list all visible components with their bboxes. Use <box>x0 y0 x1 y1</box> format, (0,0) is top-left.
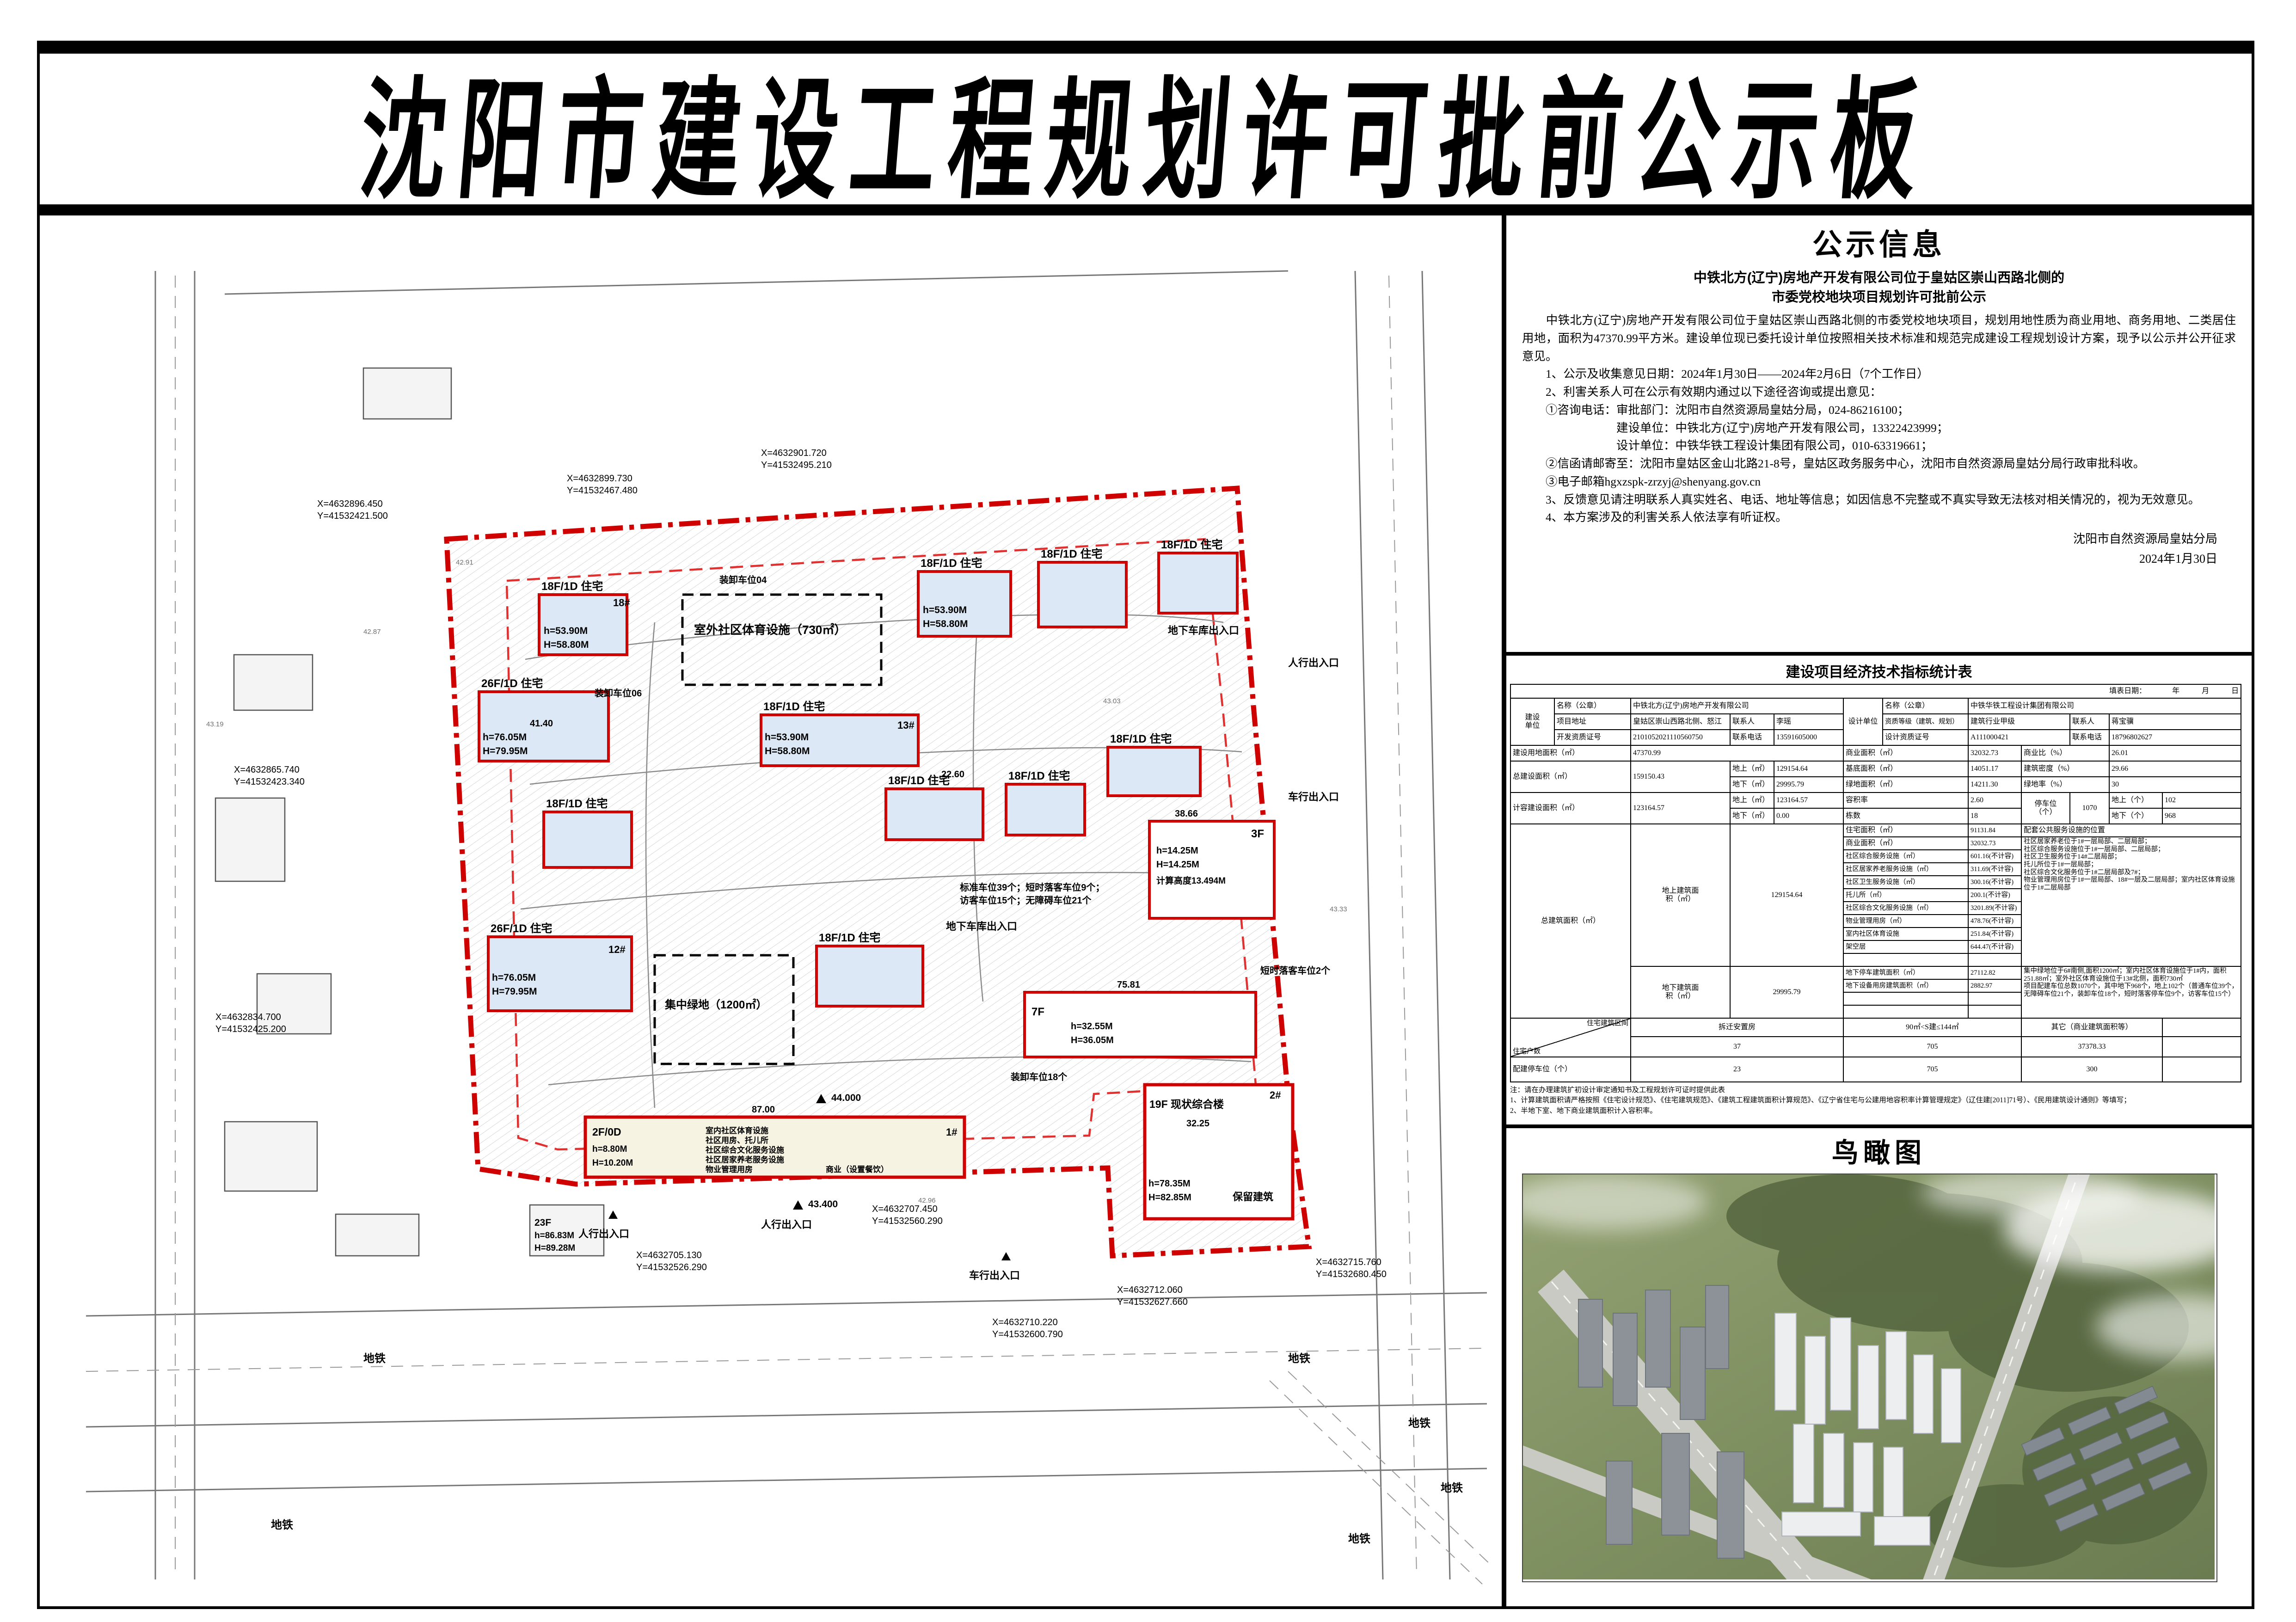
service-line: 商业（设置餐饮） <box>826 1165 889 1174</box>
item-label: 社区居家养老服务设施（㎡） <box>1843 863 1968 876</box>
table-notes: 注：请在办理建筑扩初设计审定通知书及工程规划许可证时提供此表 1、计算建筑面积请… <box>1510 1085 2248 1116</box>
building-h: h=53.90M <box>544 626 588 636</box>
frc-label: 计容建设面积（㎡） <box>1510 793 1631 824</box>
parking-note-1: 标准车位39个；短时落客车位9个； <box>960 882 1105 893</box>
building-H: H=14.25M <box>1156 860 1199 870</box>
blank-cell <box>2162 1037 2241 1057</box>
frc-value: 123164.57 <box>1631 793 1730 824</box>
building-no: 18# <box>613 597 630 608</box>
building-label: 2F/0D <box>592 1126 621 1138</box>
item-label: 托儿所（㎡） <box>1843 889 1968 902</box>
dim-label: 87.00 <box>752 1105 775 1115</box>
spot-elevation: 43.19 <box>206 720 224 728</box>
building-h: h=53.90M <box>765 732 809 743</box>
builder-cert-label: 开发资质证号 <box>1554 730 1631 745</box>
coord-x: X=4632705.130 <box>636 1250 702 1260</box>
item-value: 3201.89(不计容) <box>1968 902 2021 915</box>
size-range: 90㎡<S建≤144㎡ <box>1843 1018 2021 1037</box>
footprint: 14051.17 <box>1968 761 2021 777</box>
notice-subtitle-2: 市委党校地块项目规划许可批前公示 <box>1522 288 2236 307</box>
coord-x: X=4632707.450 <box>872 1204 938 1214</box>
building-label: 19F 现状综合楼 <box>1149 1098 1224 1110</box>
designer-cert-label: 设计资质证号 <box>1883 730 1968 745</box>
parking-v3: 300 <box>2021 1057 2162 1082</box>
coord-y: Y=41532560.290 <box>872 1216 943 1226</box>
metro-label: 地铁 <box>1288 1352 1310 1365</box>
item-value: 251.84(不计容) <box>1968 928 2021 940</box>
building-h: h=14.25M <box>1156 846 1198 856</box>
parking-above: 102 <box>2162 793 2241 808</box>
loading-bay-04: 装卸车位04 <box>719 574 767 585</box>
pedestrian-entrance: 人行出入口 <box>1288 657 1339 669</box>
land-area-label: 建设用地面积（㎡） <box>1510 745 1631 761</box>
parking-note-2: 访客车位15个；无障碍车位21个 <box>960 895 1092 906</box>
site-plan-panel: 室外社区体育设施（730㎡） 集中绿地（1200㎡） 18F/1D 住宅 18#… <box>40 215 1506 1606</box>
parking-above-label: 地上（个） <box>2109 793 2162 808</box>
gfa-below: 29995.79 <box>1730 966 1843 1018</box>
coord-y: Y=41532423.340 <box>234 777 305 787</box>
footprint-label: 基底面积（㎡） <box>1843 761 1968 777</box>
notice-date: 2024年1月30日 <box>1522 549 2236 566</box>
item-value: 300.16(不计容) <box>1968 876 2021 889</box>
dropoff-spaces: 短时落客车位2个 <box>1260 965 1331 976</box>
designer-name-label: 名称（公章） <box>1883 698 1968 714</box>
item-label: 社区综合文化服务设施（㎡） <box>1843 902 1968 915</box>
coord-x: X=4632865.740 <box>234 765 300 775</box>
item-value <box>1968 992 2021 1005</box>
metro-label: 地铁 <box>1348 1533 1370 1545</box>
building-label: 7F <box>1031 1006 1044 1018</box>
density-label: 建筑密度（%） <box>2021 761 2109 777</box>
range-count: 705 <box>1843 1037 2021 1057</box>
parking-below-label: 地下（个） <box>2109 808 2162 824</box>
building-label: 3F <box>1251 828 1264 840</box>
below-value: 29995.79 <box>1774 777 1843 793</box>
loading-bay-18: 装卸车位18个 <box>1010 1071 1068 1082</box>
building-label: 18F/1D 住宅 <box>921 557 982 570</box>
biz-ratio-label: 商业比（%） <box>2021 745 2109 761</box>
notice-section: 公示信息 中铁北方(辽宁)房地产开发有限公司位于皇姑区崇山西路北侧的 市委党校地… <box>1506 215 2252 656</box>
building-1-podium: 87.00 2F/0D h=8.80M H=10.20M 1# 室内社区体育设施… <box>585 1105 964 1177</box>
designer-grade-label: 资质等级（建筑、规划） <box>1883 714 1968 730</box>
total-constr: 159150.43 <box>1631 761 1730 793</box>
coord-x: X=4632899.730 <box>567 473 632 484</box>
builder-addr: 皇姑区崇山西路北侧、怒江 <box>1631 714 1730 730</box>
density: 29.66 <box>2109 761 2241 777</box>
builder-label: 建设 单位 <box>1510 698 1554 745</box>
level-44000: 44.000 <box>831 1093 861 1103</box>
designer-phone: 18796802627 <box>2109 730 2241 745</box>
coord-y: Y=41532421.500 <box>317 511 388 521</box>
building-h: h=78.35M <box>1148 1179 1191 1189</box>
notice-paragraph: ①咨询电话：审批部门：沈阳市自然资源局皇姑分局，024-86216100； <box>1522 401 2236 419</box>
designer-grade: 建筑行业甲级 <box>1968 714 2070 730</box>
dim-label: 41.40 <box>530 719 553 729</box>
item-label <box>1843 1005 1968 1018</box>
item-label: 地下设备用房建筑面积（㎡） <box>1843 979 1968 992</box>
building-H: H=79.95M <box>492 986 537 997</box>
notice-board: 沈阳市建设工程规划许可批前公示板 <box>37 41 2254 1609</box>
metro-label: 地铁 <box>1441 1482 1463 1494</box>
table-title: 建设项目经济技术指标统计表 <box>1510 660 2248 681</box>
birdview-section: 鸟瞰图 <box>1506 1128 2252 1606</box>
building-H: H=82.85M <box>1148 1192 1191 1203</box>
building-h: h=76.05M <box>492 972 536 983</box>
fill-date: 填表日期： 年 月 日 <box>1510 684 2241 698</box>
notice-signature: 沈阳市自然资源局皇姑分局 <box>1522 529 2236 547</box>
below-label: 地下（㎡） <box>1730 777 1774 793</box>
land-area: 47370.99 <box>1631 745 1843 761</box>
bldg-count-label: 栋数 <box>1843 808 1968 824</box>
item-value: 32032.73 <box>1968 837 2021 850</box>
service-line: 社区居家养老服务设施 <box>705 1155 784 1164</box>
coord-y: Y=41532526.290 <box>636 1262 707 1272</box>
dim-label: 32.25 <box>1186 1118 1209 1129</box>
notice-body: 中铁北方(辽宁)房地产开发有限公司位于皇姑区崇山西路北侧的市委党校地块项目，规划… <box>1522 312 2236 527</box>
builder-contact: 李瑶 <box>1774 714 1843 730</box>
frc-below-label: 地下（㎡） <box>1730 808 1774 824</box>
gfa-above: 129154.64 <box>1730 824 1843 966</box>
blank-cell <box>2162 1018 2241 1037</box>
building-h: h=8.80M <box>592 1144 627 1154</box>
item-label: 社区综合服务设施（㎡） <box>1843 850 1968 863</box>
builder-phone-label: 联系电话 <box>1730 730 1774 745</box>
builder-phone: 13591605000 <box>1774 730 1843 745</box>
item-label: 住宅面积（㎡） <box>1843 824 1968 837</box>
building-label: 23F <box>534 1217 551 1228</box>
frc-above: 123164.57 <box>1774 793 1843 808</box>
vehicle-entrance: 车行出入口 <box>969 1270 1020 1281</box>
far-label: 容积率 <box>1843 793 1968 808</box>
dim-label: 38.66 <box>1175 809 1198 819</box>
item-label <box>1843 953 1968 966</box>
title-band: 沈阳市建设工程规划许可批前公示板 <box>40 43 2252 215</box>
green-rate: 30 <box>2109 777 2241 793</box>
coord-x: X=4632712.060 <box>1117 1285 1183 1295</box>
notice-paragraph: 3、反馈意见请注明联系人真实姓名、电话、地址等信息；如因信息不完整或不真实导致无… <box>1522 491 2236 509</box>
item-value: 644.47(不计容) <box>1968 940 2021 953</box>
sport-area-label: 室外社区体育设施（730㎡） <box>694 623 846 637</box>
bldg-count: 18 <box>1968 808 2021 824</box>
item-value: 478.76(不计容) <box>1968 915 2021 928</box>
building-label: 18F/1D 住宅 <box>1041 547 1102 560</box>
building-label: 18F/1D 住宅 <box>1161 538 1222 551</box>
other-value: 37378.33 <box>2021 1037 2162 1057</box>
item-label: 物业管理用房（㎡） <box>1843 915 1968 928</box>
gfa-above-label: 地上建筑面 积（㎡） <box>1631 824 1730 966</box>
building-H: H=89.28M <box>534 1243 575 1253</box>
item-label <box>1843 992 1968 1005</box>
item-label: 地下停车建筑面积（㎡） <box>1843 966 1968 979</box>
building-3f: 3F 38.66 h=14.25M H=14.25M 计算高度13.494M <box>1149 809 1274 918</box>
green-parking-text: 集中绿地位于6#南侧,面积1200㎡；室内社区体育设施位于1#内，面积251.8… <box>2021 966 2241 1018</box>
metro-labels: 地铁 地铁 地铁 地铁 地铁 地铁 <box>271 1352 1463 1545</box>
building-h: h=86.83M <box>534 1231 574 1241</box>
right-column: 公示信息 中铁北方(辽宁)房地产开发有限公司位于皇姑区崇山西路北侧的 市委党校地… <box>1506 215 2252 1606</box>
loading-bay-06: 装卸车位06 <box>594 688 642 699</box>
builder-name: 中铁北方(辽宁)房地产开发有限公司 <box>1631 698 1843 714</box>
item-label: 商业面积（㎡） <box>1843 837 1968 850</box>
service-line: 室内社区体育设施 <box>706 1126 768 1135</box>
building-label: 26F/1D 住宅 <box>491 922 552 935</box>
designer-phone-label: 联系电话 <box>2070 730 2109 745</box>
item-label: 架空层 <box>1843 940 1968 953</box>
pedestrian-entrance: 人行出入口 <box>761 1219 812 1230</box>
item-value: 601.16(不计容) <box>1968 850 2021 863</box>
coord-x: X=4632896.450 <box>317 499 383 509</box>
builder-addr-label: 项目地址 <box>1554 714 1631 730</box>
coord-y: Y=41532627.660 <box>1117 1297 1188 1307</box>
building-label: 26F/1D 住宅 <box>481 677 543 690</box>
frc-above-label: 地上（㎡） <box>1730 793 1774 808</box>
green-rate-label: 绿地率（%） <box>2021 777 2109 793</box>
retained-building-label: 保留建筑 <box>1232 1191 1273 1203</box>
parking-v2: 705 <box>1843 1057 2021 1082</box>
building-H: H=36.05M <box>1071 1035 1114 1045</box>
builder-contact-label: 联系人 <box>1730 714 1774 730</box>
spot-elevation: 42.87 <box>363 628 381 636</box>
coord-x: X=4632715.760 <box>1316 1257 1381 1267</box>
designer-cert: A111000421 <box>1968 730 2070 745</box>
biz-ratio: 26.01 <box>2109 745 2241 761</box>
builder-name-label: 名称（公章） <box>1554 698 1631 714</box>
far: 2.60 <box>1968 793 2021 808</box>
building-label: 18F/1D 住宅 <box>819 931 880 944</box>
diagonal-header-cell: 住宅建筑区间 住宅户数 <box>1510 1018 1631 1057</box>
building-h: h=32.55M <box>1071 1021 1113 1032</box>
green-area: 14211.30 <box>1968 777 2021 793</box>
notice-paragraph: 2、利害关系人可在公示有效期内通过以下途径咨询或提出意见： <box>1522 383 2236 401</box>
coord-y: Y=41532600.790 <box>992 1329 1063 1339</box>
designer-contact-label: 联系人 <box>2070 714 2109 730</box>
building-H: H=58.80M <box>923 619 968 629</box>
building-label: 18F/1D 住宅 <box>546 797 608 810</box>
building-no: 12# <box>608 944 626 955</box>
building-label: 18F/1D 住宅 <box>541 580 603 593</box>
parking-v1: 23 <box>1631 1057 1843 1082</box>
building-H: H=10.20M <box>592 1158 633 1168</box>
item-value: 2882.97 <box>1968 979 2021 992</box>
building-h: h=53.90M <box>923 605 967 615</box>
spot-elevation: 42.96 <box>918 1197 936 1204</box>
blank-cell <box>2162 1057 2241 1082</box>
coord-y: Y=41532467.480 <box>567 485 638 496</box>
building-7f: 75.81 7F h=32.55M H=36.05M <box>1025 980 1256 1057</box>
above-label: 地上（㎡） <box>1730 761 1774 777</box>
garage-entrance: 地下车库出入口 <box>946 921 1017 932</box>
coord-y: Y=41532495.210 <box>761 460 832 470</box>
building-label: 18F/1D 住宅 <box>763 700 825 713</box>
green-area-label: 集中绿地（1200㎡） <box>664 998 767 1011</box>
dim-label: 75.81 <box>1117 980 1140 990</box>
parking-label: 停车位 （个） <box>2021 793 2070 824</box>
designer-name: 中铁华铁工程设计集团有限公司 <box>1968 698 2241 714</box>
item-value: 200.1(不计容) <box>1968 889 2021 902</box>
page-title: 沈阳市建设工程规划许可批前公示板 <box>354 43 1937 215</box>
building-h: h=76.05M <box>483 732 527 743</box>
item-label: 社区卫生服务设施（㎡） <box>1843 876 1968 889</box>
item-value <box>1968 1005 2021 1018</box>
birdview-rendering <box>1523 1174 2215 1579</box>
building-H: H=58.80M <box>765 746 810 756</box>
notice-paragraph: 1、公示及收集意见日期：2024年1月30日——2024年2月6日（7个工作日） <box>1522 365 2236 383</box>
metro-label: 地铁 <box>1408 1417 1430 1430</box>
building-label: 18F/1D 住宅 <box>888 774 950 787</box>
designer-contact: 蒋宝骥 <box>2109 714 2241 730</box>
level-43400: 43.400 <box>808 1199 838 1210</box>
service-line: 社区综合文化服务设施 <box>705 1145 784 1155</box>
building-label: 18F/1D 住宅 <box>1110 732 1172 745</box>
spot-elevation: 43.33 <box>1330 905 1347 913</box>
pedestrian-entrance: 人行出入口 <box>578 1228 629 1240</box>
biz-area: 32032.73 <box>1968 745 2021 761</box>
coord-y: Y=41532680.450 <box>1316 1269 1387 1279</box>
green-area-label: 绿地面积（㎡） <box>1843 777 1968 793</box>
other-label: 其它（商业建筑面积等） <box>2021 1018 2162 1037</box>
parking-below: 968 <box>2162 808 2241 824</box>
notice-paragraph: 中铁北方(辽宁)房地产开发有限公司位于皇姑区崇山西路北侧的市委党校地块项目，规划… <box>1522 312 2236 365</box>
building-no: 2# <box>1270 1089 1281 1101</box>
resettlement-count: 37 <box>1631 1037 1843 1057</box>
building-19f-retained: 19F 现状综合楼 2# 32.25 h=78.35M H=82.85M 保留建… <box>1145 1085 1293 1219</box>
building-no: 13# <box>897 719 915 731</box>
coord-x: X=4632710.220 <box>992 1317 1058 1327</box>
site-plan-drawing: 室外社区体育设施（730㎡） 集中绿地（1200㎡） 18F/1D 住宅 18#… <box>40 215 1502 1612</box>
notice-paragraph: 4、本方案涉及的利害关系人依法享有听证权。 <box>1522 509 2236 527</box>
biz-area-label: 商业面积（㎡） <box>1843 745 1968 761</box>
service-line: 物业管理用房 <box>706 1165 753 1174</box>
services-location-text: 社区居家养老位于1#一层局部、二层局部； 社区综合服务设施位于1#一层局部、二层… <box>2021 837 2241 966</box>
item-value: 91131.84 <box>1968 824 2021 837</box>
item-value <box>1968 953 2021 966</box>
item-value: 311.69(不计容) <box>1968 863 2021 876</box>
builder-cert: 2101052021110560750 <box>1631 730 1730 745</box>
building-calc-height: 计算高度13.494M <box>1156 875 1226 886</box>
parking-total: 1070 <box>2070 793 2109 824</box>
coord-x: X=4632901.720 <box>761 448 827 458</box>
notice-title: 公示信息 <box>1522 221 2236 264</box>
vehicle-entrance: 车行出入口 <box>1288 791 1339 803</box>
household-count-label: 住宅户数 <box>1513 1048 1541 1056</box>
above-value: 129154.64 <box>1774 761 1843 777</box>
coord-x: X=4632834.700 <box>215 1012 281 1022</box>
dwelling-range-label: 住宅建筑区间 <box>1587 1020 1628 1027</box>
coord-y: Y=41532425.200 <box>215 1024 286 1034</box>
building-H: H=58.80M <box>544 639 589 650</box>
birdview-title: 鸟瞰图 <box>1522 1131 2236 1170</box>
metro-label: 地铁 <box>271 1519 293 1531</box>
birdview-image <box>1522 1173 2217 1582</box>
notice-paragraph: ②信函请邮寄至：沈阳市皇姑区金山北路21-8号，皇姑区政务服务中心，沈阳市自然资… <box>1522 455 2236 473</box>
notice-subtitle-1: 中铁北方(辽宁)房地产开发有限公司位于皇姑区崇山西路北侧的 <box>1522 268 2236 288</box>
total-constr-label: 总建设面积（㎡） <box>1510 761 1631 793</box>
designer-label: 设计单位 <box>1843 698 1883 745</box>
gfa-below-label: 地下建筑面 积（㎡） <box>1631 966 1730 1018</box>
item-value: 27112.82 <box>1968 966 2021 979</box>
dim-label: 22.60 <box>941 769 964 780</box>
spot-elevation: 42.91 <box>456 559 473 566</box>
service-line: 社区用房、托儿所 <box>705 1136 768 1145</box>
parking-provision-label: 配建停车位（个） <box>1510 1057 1631 1082</box>
services-location-title: 配套公共服务设施的位置 <box>2021 824 2241 837</box>
item-label: 室内社区体育设施 <box>1843 928 1968 940</box>
notice-paragraph: 设计单位：中铁华铁工程设计集团有限公司，010-63319661； <box>1522 437 2236 455</box>
notice-paragraph: ③电子邮箱hgxzspk-zrzyj@shenyang.gov.cn <box>1522 473 2236 491</box>
indicator-table-section: 建设项目经济技术指标统计表 填表日期： 年 月 日 建设 单位 名称（公章） 中… <box>1506 656 2252 1128</box>
gfa-label: 总建筑面积（㎡） <box>1510 824 1631 1018</box>
spot-elevation: 43.03 <box>1103 697 1121 705</box>
indicator-table: 填表日期： 年 月 日 建设 单位 名称（公章） 中铁北方(辽宁)房地产开发有限… <box>1510 684 2241 1082</box>
garage-entrance: 地下车库出入口 <box>1168 625 1239 636</box>
frc-below: 0.00 <box>1774 808 1843 824</box>
resettlement-label: 拆迁安置房 <box>1631 1018 1843 1037</box>
metro-label: 地铁 <box>363 1352 386 1365</box>
building-label: 18F/1D 住宅 <box>1008 769 1070 782</box>
building-no: 1# <box>946 1126 957 1138</box>
building-H: H=79.95M <box>483 746 528 756</box>
notice-paragraph: 建设单位：中铁北方(辽宁)房地产开发有限公司，13322423999； <box>1522 419 2236 437</box>
